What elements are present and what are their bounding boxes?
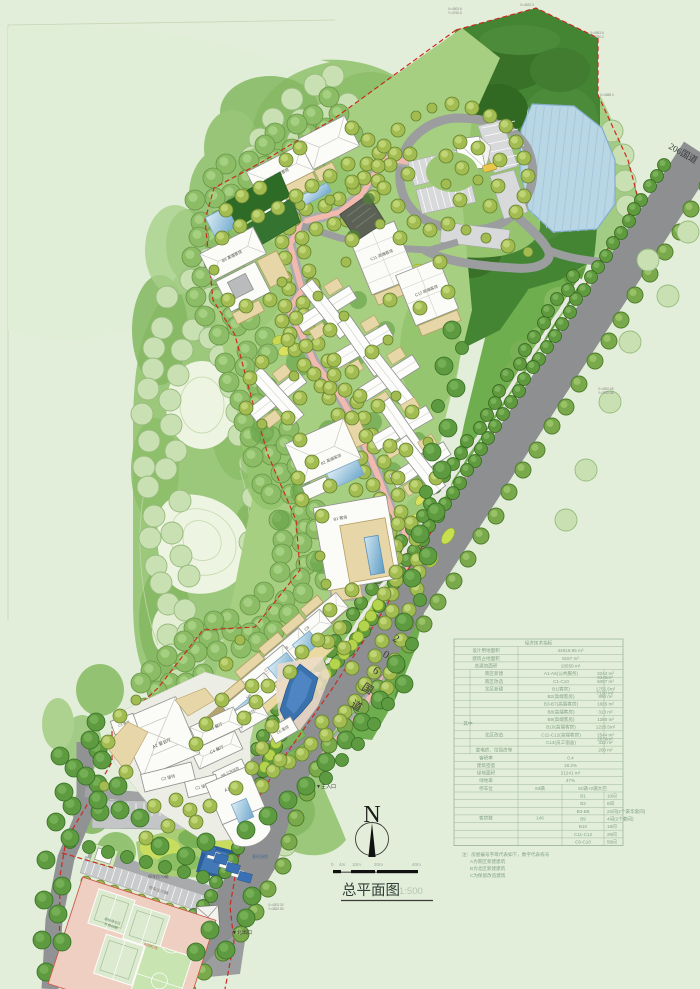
svg-text:200 m²: 200 m² xyxy=(598,748,613,753)
svg-text:896 m²: 896 m² xyxy=(598,694,613,699)
svg-text:Y=3760.8: Y=3760.8 xyxy=(448,11,462,15)
svg-text:1665 m²: 1665 m² xyxy=(597,702,614,707)
svg-text:C11-C12: C11-C12 xyxy=(574,832,592,837)
svg-text:总建筑面积: 总建筑面积 xyxy=(475,663,498,670)
svg-text:18间: 18间 xyxy=(607,823,617,830)
svg-text:X=4520.3: X=4520.3 xyxy=(520,3,534,7)
svg-text:C6-C10: C6-C10 xyxy=(575,839,591,844)
svg-text:40m: 40m xyxy=(412,862,421,867)
svg-text:313 m²: 313 m² xyxy=(598,709,613,714)
svg-text:注：房屋编号字母代表如下，数字代表栋号: 注：房屋编号字母代表如下，数字代表栋号 xyxy=(462,851,550,858)
svg-text:8间: 8间 xyxy=(607,800,615,807)
svg-text:22间(2个豪华套间): 22间(2个豪华套间) xyxy=(607,808,646,815)
svg-text:南区新建: 南区新建 xyxy=(485,670,504,677)
svg-text:20m: 20m xyxy=(374,862,383,867)
svg-text:21241 m²: 21241 m² xyxy=(561,771,581,776)
svg-text:C为保留改造建筑: C为保留改造建筑 xyxy=(470,872,506,879)
svg-text:Y=3790.2: Y=3790.2 xyxy=(590,35,604,39)
svg-text:10间: 10间 xyxy=(607,793,617,800)
svg-text:建筑占地面积: 建筑占地面积 xyxy=(472,655,500,662)
svg-text:建筑密度: 建筑密度 xyxy=(477,762,496,769)
svg-text:58间: 58间 xyxy=(607,838,617,845)
svg-text:北区改造: 北区改造 xyxy=(485,731,504,738)
svg-text:91辆+2辆大巴: 91辆+2辆大巴 xyxy=(578,785,607,792)
svg-text:146: 146 xyxy=(536,816,544,821)
svg-text:10m: 10m xyxy=(352,862,361,867)
svg-text:▼北出口: ▼北出口 xyxy=(232,929,252,936)
svg-text:总平面图: 总平面图 xyxy=(342,882,400,899)
svg-text:93辆: 93辆 xyxy=(535,785,545,792)
svg-text:Y=3792.88: Y=3792.88 xyxy=(598,391,614,395)
svg-text:经济技术指标: 经济技术指标 xyxy=(525,640,553,647)
svg-text:18.2%: 18.2% xyxy=(564,763,577,768)
svg-text:绿地面积: 绿地面积 xyxy=(477,770,496,777)
svg-text:4间(2个套间): 4间(2个套间) xyxy=(607,816,634,823)
svg-text:332 m²: 332 m² xyxy=(598,740,613,745)
svg-text:容积率: 容积率 xyxy=(479,754,493,761)
svg-text:Y=3820.80: Y=3820.80 xyxy=(268,907,284,911)
svg-text:8197 m²: 8197 m² xyxy=(562,656,579,661)
svg-text:南区改造: 南区改造 xyxy=(485,678,504,685)
svg-text:1280 m²: 1280 m² xyxy=(597,717,614,722)
svg-text:B8(高端客房): B8(高端客房) xyxy=(547,708,575,715)
svg-text:B10(高端客房): B10(高端客房) xyxy=(546,724,576,731)
svg-text:B1: B1 xyxy=(580,794,586,799)
svg-text:47%: 47% xyxy=(566,778,575,783)
svg-text:X=4588.0: X=4588.0 xyxy=(600,93,614,97)
svg-text:C1-C10: C1-C10 xyxy=(553,679,569,684)
svg-text:C11-C12(高端客房): C11-C12(高端客房) xyxy=(541,731,581,738)
svg-text:设计用地面积: 设计用地面积 xyxy=(472,647,500,654)
svg-text:B1(客房): B1(客房) xyxy=(552,685,570,692)
svg-text:北区新建: 北区新建 xyxy=(485,685,504,692)
svg-text:18550 m²: 18550 m² xyxy=(561,664,581,669)
svg-text:B3-B7(高端客房): B3-B7(高端客房) xyxy=(544,701,579,708)
svg-text:B10: B10 xyxy=(579,824,588,829)
svg-text:停车位: 停车位 xyxy=(479,785,493,792)
svg-text:28间: 28间 xyxy=(607,831,617,838)
svg-text:1:500: 1:500 xyxy=(399,886,423,897)
svg-text:其中: 其中 xyxy=(463,720,473,727)
svg-text:A为南区新建建筑: A为南区新建建筑 xyxy=(470,858,506,865)
svg-text:变电房、垃圾房等: 变电房、垃圾房等 xyxy=(476,747,513,754)
svg-text:5097 m²: 5097 m² xyxy=(597,679,614,684)
svg-text:B2(高端客房): B2(高端客房) xyxy=(547,693,575,700)
svg-text:4m: 4m xyxy=(339,862,346,867)
svg-text:绿地率: 绿地率 xyxy=(479,777,493,784)
svg-text:B9: B9 xyxy=(580,817,586,822)
svg-text:A1-A6(公共服务): A1-A6(公共服务) xyxy=(544,670,579,677)
svg-text:B9(高端客房): B9(高端客房) xyxy=(547,716,575,723)
svg-text:0.4: 0.4 xyxy=(567,755,574,760)
svg-text:B为北区新建建筑: B为北区新建建筑 xyxy=(470,865,506,872)
svg-text:客房数: 客房数 xyxy=(479,815,493,822)
svg-text:1228.5m²: 1228.5m² xyxy=(596,725,616,730)
svg-text:停车位70辆: 停车位70辆 xyxy=(148,873,168,879)
svg-text:B2: B2 xyxy=(580,801,586,806)
svg-text:44919.95 m²: 44919.95 m² xyxy=(558,648,584,653)
svg-text:垂钓场地: 垂钓场地 xyxy=(252,853,268,859)
svg-text:0: 0 xyxy=(331,862,334,867)
svg-text:C13(员工宿舍): C13(员工宿舍) xyxy=(546,739,576,746)
svg-text:B3-B8: B3-B8 xyxy=(577,809,590,814)
